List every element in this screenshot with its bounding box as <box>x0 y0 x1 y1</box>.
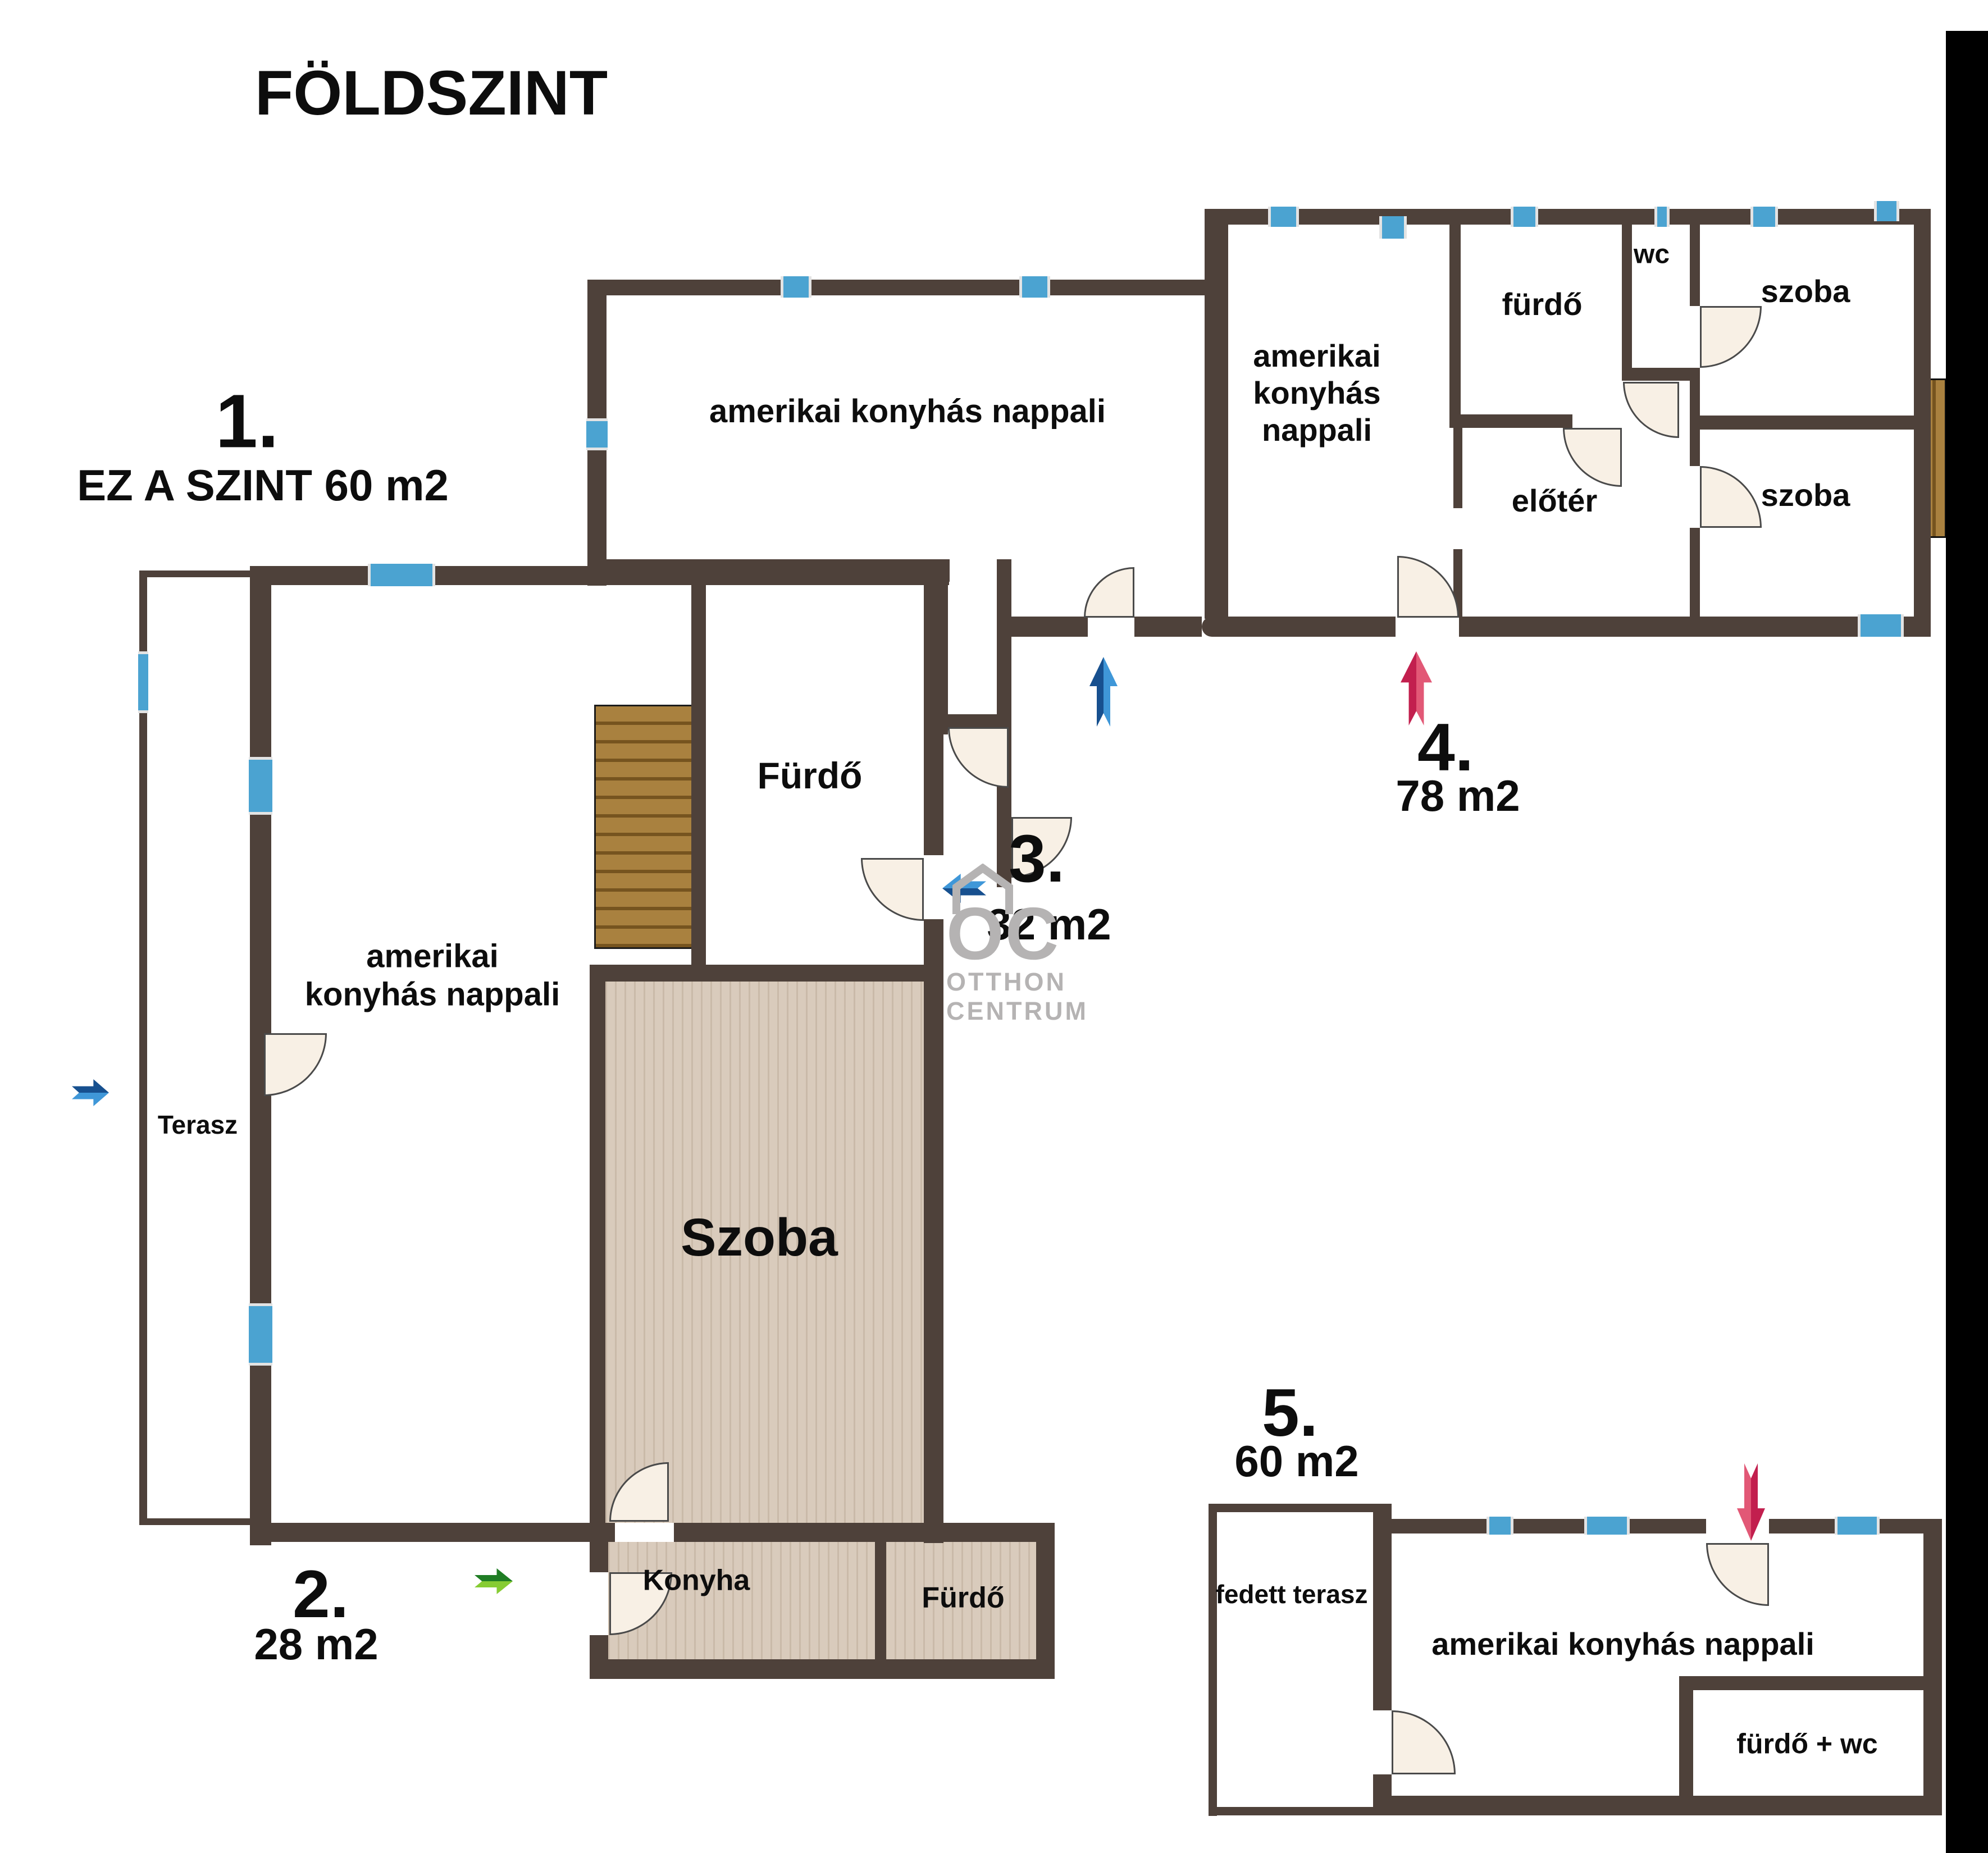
wall-segment <box>1373 1519 1706 1533</box>
room-label-unit1-bath: Fürdő <box>758 754 863 798</box>
room-label-unit5-living: amerikai konyhás nappali <box>1431 1626 1814 1663</box>
wall-segment <box>1209 1807 1373 1815</box>
wall-segment <box>1209 1504 1373 1512</box>
wall-segment <box>1923 1519 1942 1815</box>
window-marker <box>138 651 148 713</box>
window-marker <box>368 564 435 586</box>
room-label-unit1-terrace: Terasz <box>158 1110 238 1140</box>
entrance-arrow-down-icon <box>1737 1463 1765 1541</box>
wall-segment <box>924 919 943 1543</box>
staircase <box>594 705 696 949</box>
wall-segment <box>691 566 706 965</box>
wall-segment <box>674 1523 1055 1542</box>
room-label-unit1-room: Szoba <box>681 1206 838 1269</box>
wall-segment <box>1036 1542 1055 1679</box>
window-marker <box>1584 1517 1630 1535</box>
wall-segment <box>1373 1504 1392 1710</box>
page-title: FÖLDSZINT <box>255 56 608 130</box>
wall-segment <box>139 1518 252 1525</box>
wall-segment <box>1914 209 1931 637</box>
wall-segment <box>1679 1676 1693 1797</box>
room-label-unit4-room-bottom: szoba <box>1761 477 1850 514</box>
unit-2-area: 28 m2 <box>254 1618 378 1670</box>
wall-segment <box>1690 416 1914 430</box>
room-label-unit4-living: amerikai konyhás nappali <box>1253 337 1380 449</box>
window-marker <box>1654 207 1670 227</box>
wall-segment <box>139 570 147 1525</box>
room-label-unit5-covered-terrace: fedett terasz <box>1216 1579 1368 1609</box>
entrance-arrow-right-icon <box>72 1079 109 1106</box>
wall-segment <box>590 1542 608 1572</box>
wall-segment <box>931 559 948 734</box>
door-swing <box>1397 556 1459 618</box>
wall-segment <box>1209 1504 1217 1816</box>
wall-segment <box>1134 617 1202 637</box>
wall-segment <box>1690 430 1700 466</box>
entrance-arrow-up-icon <box>1089 657 1118 727</box>
wall-segment <box>1453 416 1462 508</box>
door-swing <box>264 1033 327 1096</box>
window-marker <box>781 276 811 298</box>
wall-segment <box>1679 1676 1923 1690</box>
window-marker <box>1379 216 1407 239</box>
window-marker <box>1874 201 1899 221</box>
room-label-unit2-bath: Fürdő <box>922 1581 1004 1615</box>
window-marker <box>249 757 272 815</box>
wall-segment <box>1622 223 1632 381</box>
watermark-line2: CENTRUM <box>946 997 1088 1026</box>
wall-segment <box>590 965 943 982</box>
unit-5-area: 60 m2 <box>1234 1435 1358 1487</box>
image-edge-strip <box>1946 31 1988 1853</box>
wall-segment <box>1690 223 1700 306</box>
watermark-line1: OTTHON <box>946 967 1088 997</box>
wall-segment <box>1449 223 1461 416</box>
wall-segment <box>875 1542 886 1661</box>
door-swing <box>1623 382 1679 438</box>
wall-segment <box>1008 617 1088 637</box>
window-marker <box>1511 207 1538 227</box>
watermark-logo: OC OTTHON CENTRUM <box>946 864 1088 1026</box>
wall-segment <box>587 280 1228 295</box>
wall-segment <box>587 559 950 582</box>
door-swing <box>1700 466 1762 528</box>
room-label-unit1-living: amerikai konyhás nappali <box>305 938 560 1015</box>
room-label-unit4-room-top: szoba <box>1761 273 1850 310</box>
window-marker <box>1487 1517 1513 1535</box>
floor-plan: FÖLDSZINT <box>0 0 1988 1853</box>
door-swing <box>1706 1543 1769 1606</box>
entrance-arrow-right-icon <box>475 1568 513 1594</box>
wall-segment <box>1373 1796 1942 1815</box>
wall-segment <box>1690 528 1700 617</box>
unit-1-area: EZ A SZINT 60 m2 <box>77 459 449 511</box>
door-swing <box>861 858 924 921</box>
window-marker <box>249 1303 272 1366</box>
wall-segment <box>590 1659 1055 1679</box>
door-swing <box>1700 306 1762 368</box>
window-marker <box>586 418 608 450</box>
room-label-unit5-bath-wc: fürdő + wc <box>1736 1728 1877 1761</box>
door-swing <box>1563 428 1622 487</box>
watermark-monogram: OC <box>946 900 1088 967</box>
door-swing <box>948 727 1009 788</box>
door-swing <box>1392 1710 1456 1774</box>
window-marker <box>1750 207 1778 227</box>
room-label-unit3-living: amerikai konyhás nappali <box>709 392 1106 431</box>
door-swing <box>1084 567 1134 618</box>
window-marker <box>1858 614 1904 637</box>
window-marker <box>1835 1517 1880 1535</box>
wall-segment <box>1205 209 1930 225</box>
wall-segment <box>1202 617 1396 637</box>
wall-segment <box>1622 368 1700 381</box>
wall-segment <box>1449 414 1572 428</box>
window-marker <box>1019 276 1050 298</box>
unit-4-area: 78 m2 <box>1396 770 1520 821</box>
room-label-unit4-bath: fürdő <box>1502 286 1582 323</box>
room-label-unit4-wc: wc <box>1634 239 1670 271</box>
wall-segment <box>139 570 252 577</box>
window-marker <box>1268 207 1299 227</box>
room-label-unit4-hall: előtér <box>1512 482 1598 519</box>
wall-segment <box>590 965 605 1543</box>
room-label-unit2-kitchen: Konyha <box>643 1563 750 1598</box>
unit-1-number: 1. <box>216 376 279 465</box>
wall-segment <box>250 1523 615 1542</box>
wall-segment <box>1690 381 1700 416</box>
wall-segment <box>1205 209 1228 619</box>
